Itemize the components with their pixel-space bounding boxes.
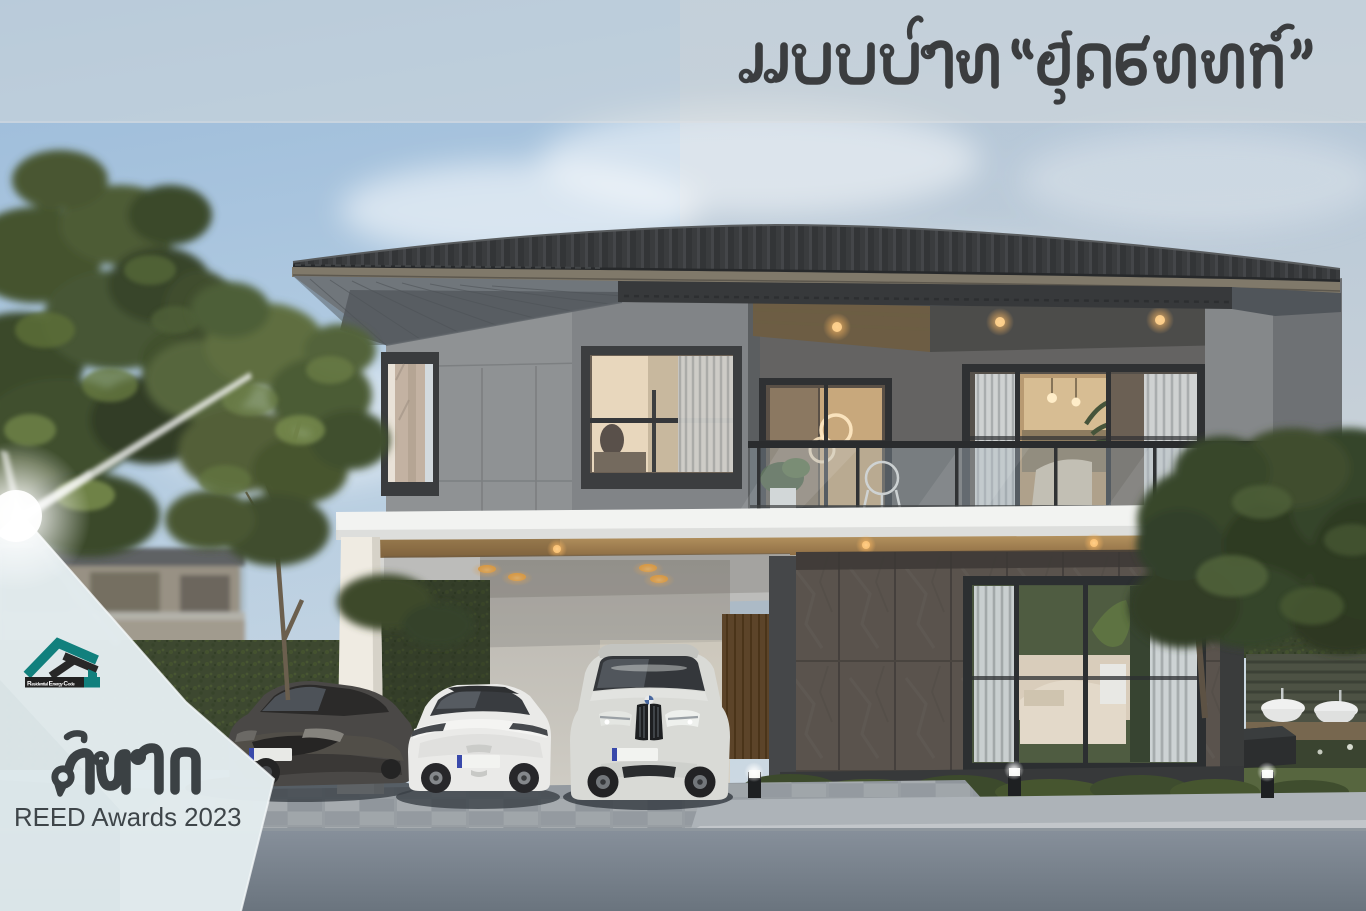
svg-text:REED Awards 2023: REED Awards 2023 <box>14 804 242 832</box>
svg-text:Residential Energy Code: Residential Energy Code <box>27 681 75 688</box>
